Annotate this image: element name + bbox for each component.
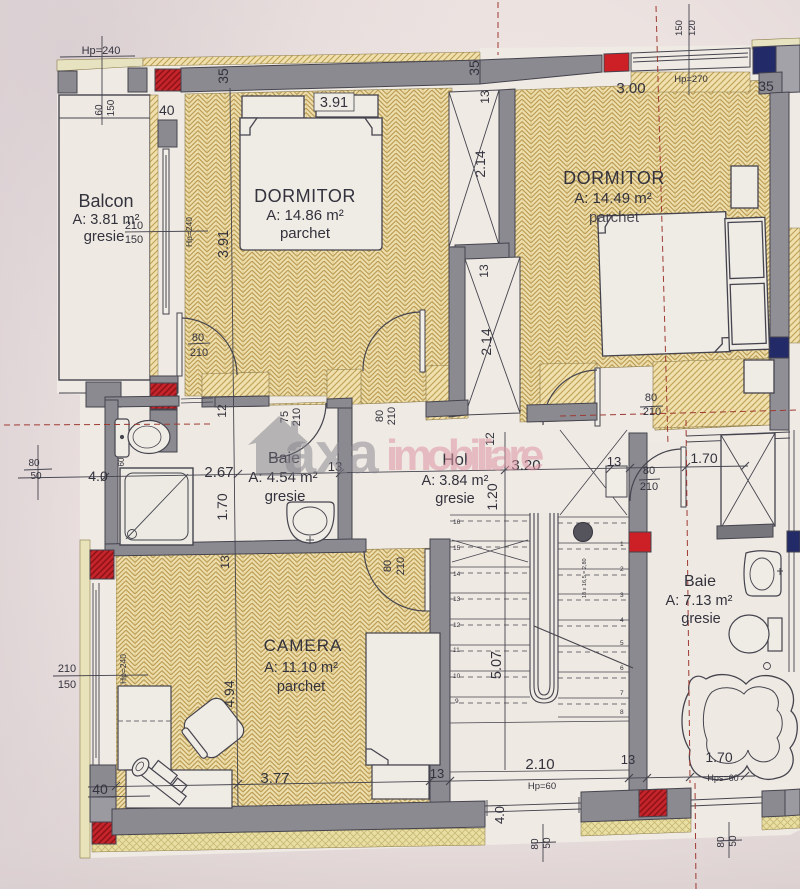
svg-text:A: 14.49 m²: A: 14.49 m²	[574, 190, 652, 207]
svg-text:50: 50	[728, 835, 739, 847]
svg-text:35: 35	[466, 60, 482, 76]
svg-text:11: 11	[453, 647, 460, 654]
svg-text:gresie: gresie	[265, 488, 306, 505]
svg-text:1.70: 1.70	[214, 493, 230, 520]
svg-text:3.91: 3.91	[320, 95, 348, 111]
svg-text:10: 10	[453, 673, 461, 680]
svg-text:2.14: 2.14	[478, 328, 494, 355]
svg-text:150: 150	[106, 99, 117, 116]
svg-text:1: 1	[620, 541, 624, 548]
svg-text:6: 6	[620, 665, 624, 672]
svg-text:4.0: 4.0	[88, 468, 108, 484]
svg-text:15: 15	[453, 545, 461, 552]
svg-text:150: 150	[58, 679, 76, 691]
svg-text:CAMERA: CAMERA	[264, 636, 343, 655]
svg-text:8: 8	[620, 709, 624, 716]
svg-text:3.00: 3.00	[616, 80, 645, 97]
svg-text:210: 210	[640, 481, 658, 493]
svg-text:Hp=240: Hp=240	[184, 217, 194, 247]
svg-text:1.70: 1.70	[690, 450, 717, 466]
svg-text:35: 35	[758, 78, 774, 94]
svg-text:parchet: parchet	[589, 209, 640, 226]
svg-text:Balcon: Balcon	[78, 191, 133, 211]
svg-text:12: 12	[215, 404, 229, 418]
svg-text:gresie: gresie	[681, 611, 721, 627]
svg-text:80: 80	[716, 836, 727, 848]
svg-text:3: 3	[620, 592, 624, 599]
svg-text:A: 7.13 m²: A: 7.13 m²	[666, 593, 733, 609]
svg-text:12: 12	[453, 622, 461, 629]
svg-text:2.67: 2.67	[204, 464, 233, 481]
svg-text:50: 50	[30, 471, 42, 482]
svg-text:50: 50	[542, 837, 553, 849]
svg-text:1.20: 1.20	[484, 483, 500, 510]
svg-text:Hp=240: Hp=240	[118, 654, 128, 684]
svg-text:gresie: gresie	[84, 228, 125, 245]
svg-text:Hp=60: Hp=60	[528, 781, 556, 792]
svg-text:parchet: parchet	[280, 225, 331, 242]
svg-text:210: 210	[386, 407, 398, 425]
svg-text:Hp=270: Hp=270	[674, 74, 708, 85]
svg-text:14: 14	[453, 571, 461, 578]
svg-text:150: 150	[674, 20, 685, 36]
svg-text:Hp=240: Hp=240	[82, 45, 121, 57]
svg-text:13: 13	[430, 766, 444, 781]
svg-text:parchet: parchet	[277, 679, 325, 695]
svg-text:210: 210	[190, 347, 208, 359]
svg-text:210: 210	[58, 663, 76, 675]
svg-text:35: 35	[215, 68, 231, 84]
svg-text:18 x 16,5 = 2,80: 18 x 16,5 = 2,80	[582, 558, 588, 598]
svg-text:3.77: 3.77	[260, 770, 289, 787]
svg-text:5.07: 5.07	[489, 651, 505, 679]
svg-text:DORMITOR: DORMITOR	[254, 186, 356, 206]
svg-text:60: 60	[94, 104, 105, 116]
svg-text:80: 80	[192, 332, 204, 344]
svg-text:13: 13	[477, 264, 491, 278]
svg-text:1.70: 1.70	[705, 749, 732, 765]
svg-text:4.0: 4.0	[492, 806, 507, 824]
svg-text:gresie: gresie	[435, 491, 475, 507]
svg-text:13: 13	[478, 90, 492, 104]
svg-text:2.14: 2.14	[472, 150, 488, 177]
svg-text:13: 13	[453, 596, 461, 603]
svg-text:16: 16	[453, 519, 461, 526]
svg-text:2: 2	[620, 566, 624, 573]
svg-text:7: 7	[620, 690, 624, 697]
svg-text:Hps=60: Hps=60	[707, 773, 738, 783]
svg-text:210: 210	[395, 557, 407, 575]
svg-text:2.10: 2.10	[525, 756, 554, 773]
svg-text:13: 13	[621, 752, 635, 767]
svg-text:60: 60	[117, 457, 126, 466]
svg-text:80: 80	[382, 560, 394, 572]
svg-text:5: 5	[620, 640, 624, 647]
svg-text:imobiliare: imobiliare	[386, 431, 543, 480]
svg-text:40: 40	[159, 102, 175, 118]
svg-text:DORMITOR: DORMITOR	[563, 168, 665, 188]
svg-text:axa: axa	[284, 421, 380, 486]
svg-text:80: 80	[28, 458, 40, 469]
svg-text:4: 4	[620, 617, 624, 624]
svg-text:3.91: 3.91	[216, 230, 232, 258]
svg-text:13: 13	[218, 555, 232, 569]
svg-text:210: 210	[643, 406, 661, 418]
svg-text:120: 120	[687, 20, 698, 36]
svg-text:80: 80	[530, 838, 541, 850]
svg-text:9: 9	[455, 698, 459, 705]
svg-text:4.94: 4.94	[221, 680, 237, 707]
svg-text:80: 80	[645, 392, 657, 404]
svg-text:80: 80	[643, 465, 655, 477]
svg-text:13: 13	[607, 454, 621, 469]
svg-text:Baie: Baie	[684, 573, 716, 590]
svg-text:210: 210	[125, 220, 143, 232]
svg-text:A: 14.86 m²: A: 14.86 m²	[266, 207, 344, 224]
svg-text:40: 40	[92, 781, 108, 797]
svg-text:A: 11.10 m²: A: 11.10 m²	[264, 660, 338, 676]
svg-text:150: 150	[125, 234, 143, 246]
